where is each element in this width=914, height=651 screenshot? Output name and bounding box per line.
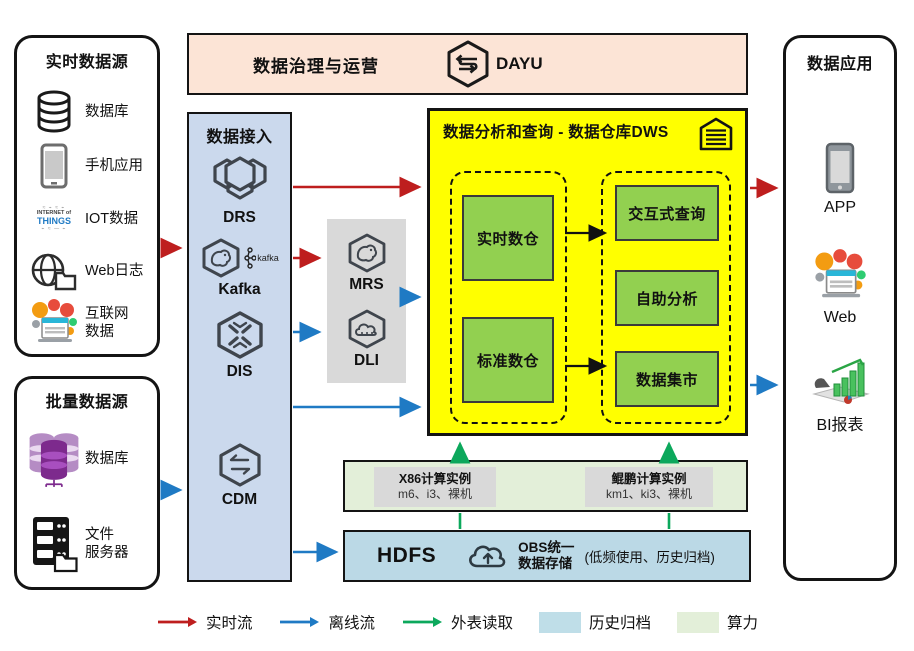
kunpeng-instance-cell: 鲲鹏计算实例 km1、ki3、裸机: [585, 467, 713, 507]
module-standard-warehouse: 标准数仓: [462, 317, 554, 403]
legend-label: 外表读取: [451, 611, 513, 633]
service-label: Kafka: [218, 281, 260, 299]
app-label: BI报表: [816, 411, 863, 435]
source-label: 数据库: [85, 450, 129, 468]
list-item: 文件 服务器: [27, 507, 151, 581]
processing-box: MRS DLI: [327, 219, 406, 383]
legend-label: 算力: [727, 611, 758, 633]
service-drs: DRS: [189, 152, 290, 227]
legend-item-offline: 离线流: [278, 611, 375, 633]
list-item: 互联网 数据: [27, 296, 151, 350]
purple-database-icon: [27, 425, 81, 493]
legend-item-compute: 算力: [677, 611, 758, 633]
database-icon: [27, 90, 81, 134]
dayu-label: DAYU: [496, 54, 543, 74]
instance-name: X86计算实例: [399, 472, 471, 488]
dli-icon: [346, 309, 388, 349]
dayu-icon: [445, 39, 491, 89]
kafka-service-icon: [200, 238, 242, 278]
service-kafka: kafka Kafka: [189, 238, 290, 299]
service-mrs: MRS: [327, 233, 406, 294]
legend-label: 实时流: [206, 611, 253, 633]
list-item: APP: [786, 142, 894, 217]
legend: 实时流 离线流 外表读取 历史归档 算力: [0, 611, 914, 633]
blue-arrow-icon: [278, 615, 320, 629]
x86-instance-cell: X86计算实例 m6、i3、裸机: [374, 467, 496, 507]
phone-icon: [27, 143, 81, 189]
source-label: IOT数据: [85, 210, 138, 228]
data-apps-title: 数据应用: [786, 50, 894, 74]
legend-item-history-archive: 历史归档: [539, 611, 651, 633]
service-label: MRS: [349, 276, 383, 294]
realtime-sources-box: 实时数据源 数据库 手机应用: [14, 35, 160, 357]
internet-icon: [27, 298, 81, 348]
list-item: ≈ ⌁ ≈ ⌁ INTERNET of THINGS ⌁ ≈ — ⌁ IOT数据: [27, 194, 151, 244]
hdfs-label: HDFS: [377, 544, 436, 568]
module-self-analysis: 自助分析: [615, 270, 719, 326]
app-phone-icon: [825, 142, 855, 194]
list-item: BI报表: [786, 358, 894, 435]
service-label: CDM: [222, 491, 257, 509]
drs-icon: [209, 152, 271, 206]
instance-specs: m6、i3、裸机: [398, 487, 472, 502]
cdm-icon: [216, 442, 264, 488]
service-label: DLI: [354, 352, 379, 370]
governance-title: 数据治理与运营: [253, 52, 379, 77]
web-log-icon: [27, 249, 81, 293]
service-label: DIS: [227, 363, 253, 381]
obs-cloud-icon: [466, 540, 510, 572]
list-item: 数据库: [27, 88, 151, 136]
source-label: 手机应用: [85, 157, 143, 175]
batch-sources-title: 批量数据源: [17, 388, 157, 412]
iot-icon: ≈ ⌁ ≈ ⌁ INTERNET of THINGS ⌁ ≈ — ⌁: [27, 206, 81, 232]
architecture-diagram: 实时数据源 数据库 手机应用: [0, 0, 914, 651]
data-access-column: 数据接入 DRS: [187, 112, 292, 582]
list-item: 数据库: [27, 417, 151, 501]
history-archive-swatch: [539, 612, 581, 633]
compute-swatch: [677, 612, 719, 633]
dws-box: 数据分析和查询 - 数据仓库DWS 实时数仓 标准数仓 交互式查询 自助分析 数…: [427, 108, 748, 436]
dis-icon: [214, 310, 266, 360]
compute-box: X86计算实例 m6、i3、裸机 鲲鹏计算实例 km1、ki3、裸机: [343, 460, 748, 512]
red-arrow-icon: [156, 615, 198, 629]
warehouse-icon: [696, 116, 736, 152]
instance-name: 鲲鹏计算实例: [611, 472, 686, 488]
source-label: Web日志: [85, 262, 144, 280]
realtime-sources-title: 实时数据源: [17, 48, 157, 72]
service-dli: DLI: [327, 309, 406, 370]
app-label: APP: [824, 199, 856, 217]
list-item: Web日志: [27, 246, 151, 296]
service-cdm: CDM: [189, 442, 290, 509]
source-label: 互联网 数据: [85, 305, 129, 341]
data-access-title: 数据接入: [189, 123, 290, 147]
list-item: Web: [786, 248, 894, 327]
source-label: 文件 服务器: [85, 526, 129, 562]
source-label: 数据库: [85, 103, 129, 121]
bi-chart-icon: [810, 358, 870, 406]
storage-box: HDFS OBS统一 数据存储 (低频使用、历史归档): [343, 530, 751, 582]
governance-bar: 数据治理与运营 DAYU: [187, 33, 748, 95]
file-server-icon: [27, 515, 81, 573]
dws-title: 数据分析和查询 - 数据仓库DWS: [443, 120, 669, 142]
batch-sources-box: 批量数据源 数据库: [14, 376, 160, 590]
app-label: Web: [824, 309, 857, 327]
obs-label: OBS统一 数据存储: [518, 540, 574, 572]
service-dis: DIS: [189, 310, 290, 381]
storage-note: (低频使用、历史归档): [584, 546, 715, 566]
module-interactive-query: 交互式查询: [615, 185, 719, 241]
mrs-icon: [346, 233, 388, 273]
legend-item-realtime: 实时流: [156, 611, 253, 633]
module-data-mart: 数据集市: [615, 351, 719, 407]
legend-label: 离线流: [328, 611, 375, 633]
green-arrow-icon: [401, 615, 443, 629]
module-realtime-warehouse: 实时数仓: [462, 195, 554, 281]
service-label: DRS: [223, 209, 256, 227]
instance-specs: km1、ki3、裸机: [606, 487, 692, 502]
legend-item-external-read: 外表读取: [401, 611, 513, 633]
list-item: 手机应用: [27, 142, 151, 190]
web-icon: [812, 248, 868, 304]
data-apps-box: 数据应用 APP: [783, 35, 897, 581]
legend-label: 历史归档: [589, 611, 651, 633]
kafka-logo-icon: kafka: [244, 247, 279, 269]
